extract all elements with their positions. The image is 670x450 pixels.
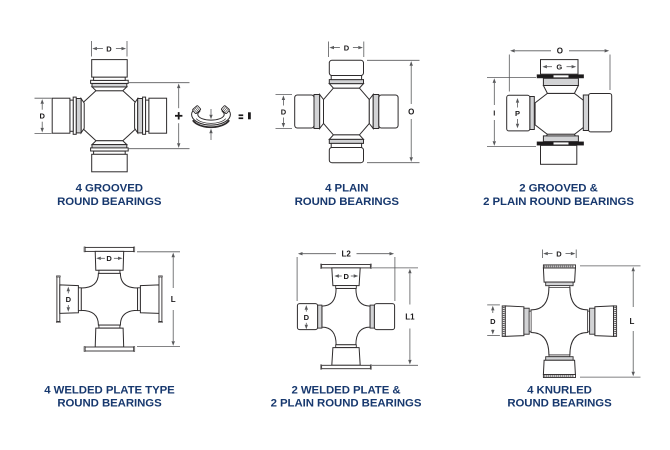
- svg-text:ROUND BEARINGS: ROUND BEARINGS: [57, 398, 162, 410]
- svg-text:D: D: [304, 313, 310, 322]
- svg-text:ROUND BEARINGS: ROUND BEARINGS: [507, 398, 612, 410]
- svg-text:D: D: [343, 272, 349, 281]
- svg-text:D: D: [344, 43, 350, 52]
- svg-text:G: G: [556, 63, 562, 72]
- svg-text:D: D: [39, 112, 45, 121]
- svg-text:2 PLAIN ROUND BEARINGS: 2 PLAIN ROUND BEARINGS: [483, 196, 634, 208]
- svg-text:2 GROOVED &: 2 GROOVED &: [519, 183, 598, 195]
- svg-text:4 GROOVED: 4 GROOVED: [76, 183, 143, 195]
- svg-text:ROUND BEARINGS: ROUND BEARINGS: [57, 196, 162, 208]
- svg-text:4 KNURLED: 4 KNURLED: [527, 385, 592, 397]
- svg-text:L: L: [630, 317, 635, 326]
- svg-text:D: D: [556, 249, 562, 258]
- svg-text:ROUND BEARINGS: ROUND BEARINGS: [295, 196, 400, 208]
- svg-text:O: O: [408, 108, 414, 117]
- svg-text:I: I: [493, 109, 495, 118]
- svg-text:D: D: [66, 295, 72, 304]
- svg-text:D: D: [106, 44, 112, 53]
- svg-text:2 WELDED PLATE &: 2 WELDED PLATE &: [291, 385, 400, 397]
- svg-text:L2: L2: [342, 250, 352, 259]
- svg-text:P: P: [515, 109, 520, 118]
- svg-text:L1: L1: [405, 313, 415, 322]
- svg-text:O: O: [557, 47, 563, 56]
- svg-text:D: D: [490, 317, 496, 326]
- svg-text:2 PLAIN ROUND BEARINGS: 2 PLAIN ROUND BEARINGS: [271, 398, 422, 410]
- svg-text:D: D: [106, 254, 112, 263]
- svg-text:L: L: [171, 295, 176, 304]
- svg-text:4 PLAIN: 4 PLAIN: [325, 183, 368, 195]
- svg-text:4 WELDED PLATE TYPE: 4 WELDED PLATE TYPE: [44, 385, 175, 397]
- svg-text:D: D: [281, 107, 287, 116]
